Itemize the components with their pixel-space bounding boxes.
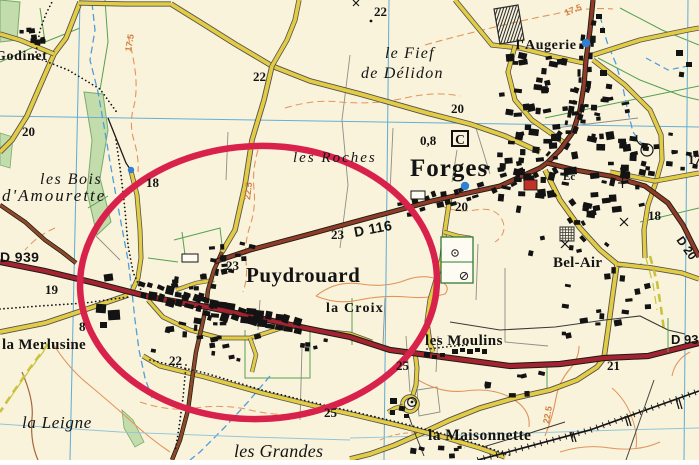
svg-text:Éc: Éc <box>563 171 575 183</box>
svg-text:Bel-Air: Bel-Air <box>553 255 602 271</box>
svg-text:8: 8 <box>79 319 86 334</box>
svg-text:21: 21 <box>607 358 620 373</box>
svg-text:D 93: D 93 <box>671 332 698 347</box>
svg-text:les Roches: les Roches <box>293 150 377 166</box>
svg-text:22.5: 22.5 <box>242 182 254 201</box>
svg-text:25: 25 <box>324 405 338 420</box>
svg-text:22: 22 <box>374 4 387 19</box>
svg-text:22: 22 <box>253 69 266 84</box>
svg-text:les Moulins: les Moulins <box>425 333 503 349</box>
svg-text:la Merlusine: la Merlusine <box>2 337 86 353</box>
svg-text:25: 25 <box>396 358 410 373</box>
svg-text:la Leigne: la Leigne <box>22 413 92 432</box>
svg-text:Godinet: Godinet <box>0 49 47 64</box>
svg-text:les Grandes: les Grandes <box>234 441 323 460</box>
svg-text:20: 20 <box>22 124 35 139</box>
svg-text:18: 18 <box>648 208 662 223</box>
svg-text:20: 20 <box>455 199 468 214</box>
svg-text:de Délidon: de Délidon <box>361 65 444 82</box>
svg-text:23: 23 <box>226 258 240 273</box>
svg-text:17: 17 <box>688 152 699 167</box>
svg-text:le Fief: le Fief <box>385 45 436 62</box>
svg-text:Forges: Forges <box>410 155 488 182</box>
svg-text:23: 23 <box>331 227 345 242</box>
svg-text:D 939: D 939 <box>0 249 39 265</box>
svg-text:la Maisonnette: la Maisonnette <box>428 427 531 444</box>
svg-text:l'Augerie: l'Augerie <box>516 38 577 53</box>
svg-text:19: 19 <box>45 282 59 297</box>
svg-text:la Croix: la Croix <box>326 301 384 316</box>
svg-text:22: 22 <box>169 353 182 368</box>
svg-text:C: C <box>455 132 465 147</box>
svg-text:0,8: 0,8 <box>420 133 437 148</box>
svg-text:d'Amourette: d'Amourette <box>2 186 106 205</box>
svg-text:18: 18 <box>146 175 160 190</box>
svg-text:20: 20 <box>451 101 464 116</box>
svg-text:Puydrouard: Puydrouard <box>246 263 360 287</box>
